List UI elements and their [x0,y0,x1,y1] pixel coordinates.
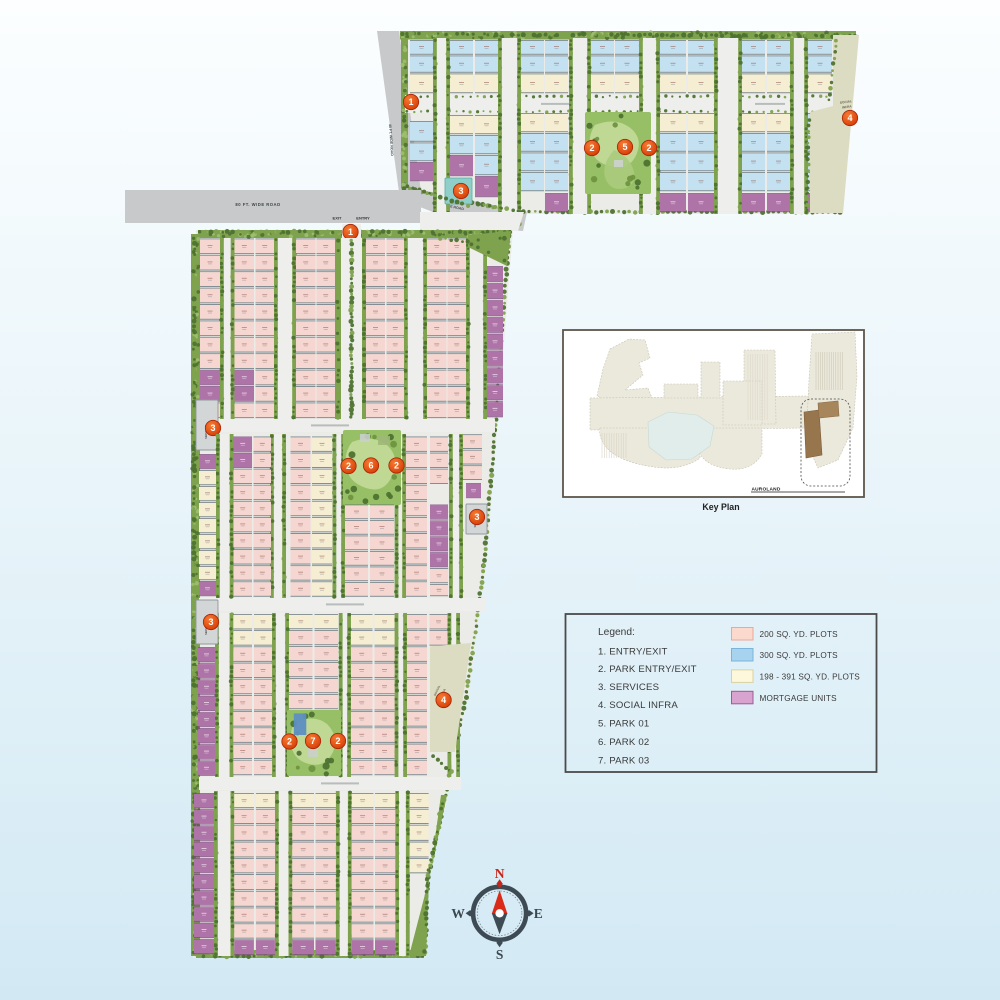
svg-text:ENTRY: ENTRY [356,216,370,221]
svg-text:80 FT. WIDE ROAD: 80 FT. WIDE ROAD [235,202,280,207]
svg-text:4: 4 [441,695,446,705]
svg-text:3: 3 [208,617,213,627]
svg-text:5: 5 [622,142,627,152]
svg-text:3: 3 [458,186,463,196]
svg-text:6: 6 [368,461,373,471]
svg-text:EXIT: EXIT [333,216,342,221]
svg-text:2: 2 [394,461,399,471]
svg-text:2: 2 [287,737,292,747]
svg-text:2: 2 [346,461,351,471]
svg-text:7: 7 [310,736,315,746]
svg-text:3: 3 [474,512,479,522]
svg-text:3: 3 [210,423,215,433]
svg-text:4: 4 [847,113,852,123]
svg-text:2: 2 [646,143,651,153]
svg-text:1: 1 [348,227,353,237]
svg-text:2: 2 [335,736,340,746]
svg-text:2: 2 [589,143,594,153]
svg-text:1: 1 [408,97,413,107]
